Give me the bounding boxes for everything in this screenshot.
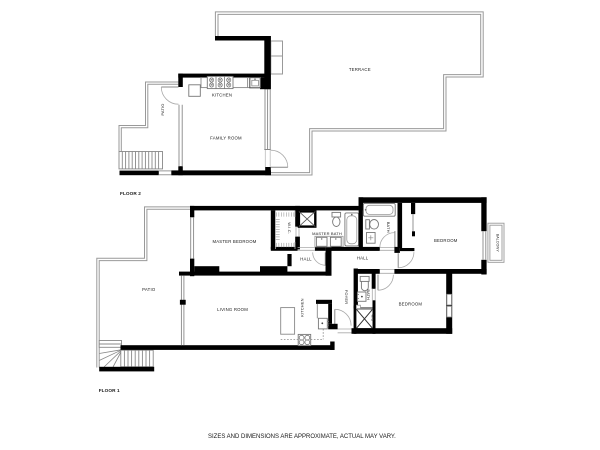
svg-text:W/D: W/D [370,314,374,321]
svg-text:HALL: HALL [300,256,312,261]
svg-text:PATIO: PATIO [142,287,156,292]
svg-text:KITCHEN: KITCHEN [300,298,305,317]
svg-text:TERRACE: TERRACE [349,67,371,72]
svg-text:LIVING ROOM: LIVING ROOM [217,307,248,312]
svg-text:FLOOR 1: FLOOR 1 [99,388,120,393]
svg-text:BALCONY: BALCONY [495,234,499,253]
svg-text:FLOOR 2: FLOOR 2 [120,191,141,196]
svg-text:BEDROOM: BEDROOM [399,301,423,306]
svg-text:PATIO: PATIO [160,103,165,115]
svg-text:BEDROOM: BEDROOM [434,238,458,243]
svg-text:MASTER BATH: MASTER BATH [312,231,342,236]
svg-text:MASTER BEDROOM: MASTER BEDROOM [212,239,256,244]
svg-text:BATH: BATH [366,289,371,299]
svg-text:BATH: BATH [386,222,391,233]
svg-text:FAMILY ROOM: FAMILY ROOM [210,136,242,141]
svg-text:HALL: HALL [357,256,369,261]
svg-text:KITCHEN: KITCHEN [212,92,232,97]
svg-text:SIZES AND DIMENSIONS ARE APPRO: SIZES AND DIMENSIONS ARE APPROXIMATE, AC… [208,434,396,440]
svg-text:W.I.C.: W.I.C. [287,222,292,234]
svg-text:FOYER: FOYER [344,290,349,305]
